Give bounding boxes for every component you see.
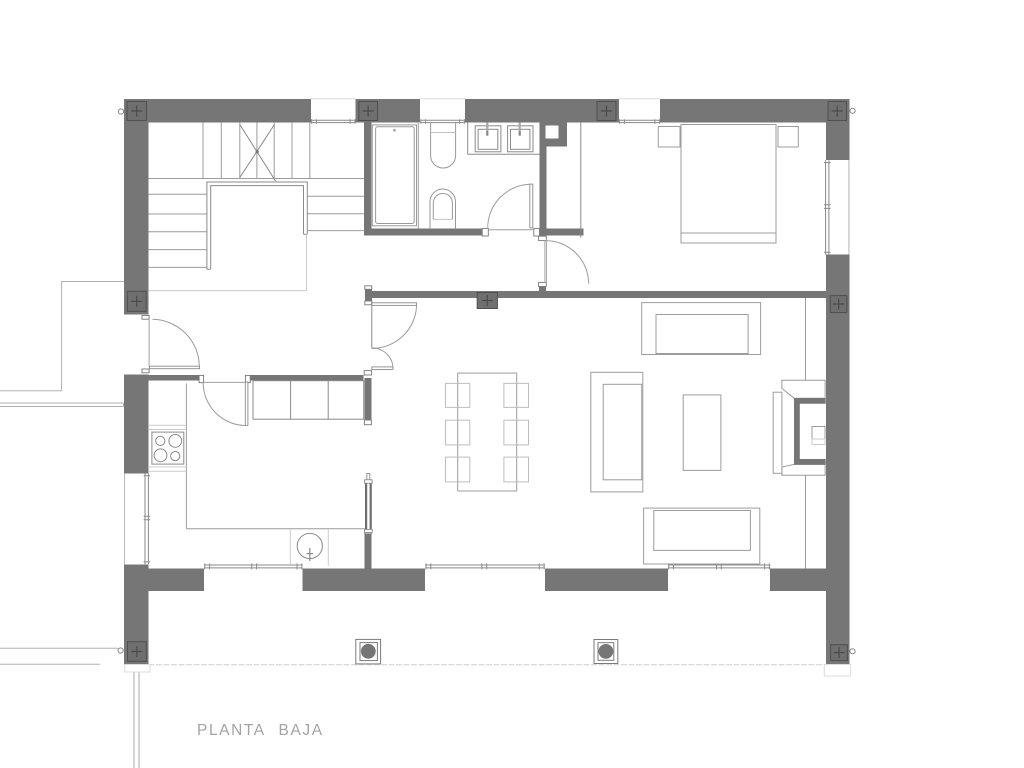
svg-text:PLANTA: PLANTA	[197, 722, 266, 739]
svg-text:BAJA: BAJA	[279, 722, 324, 739]
